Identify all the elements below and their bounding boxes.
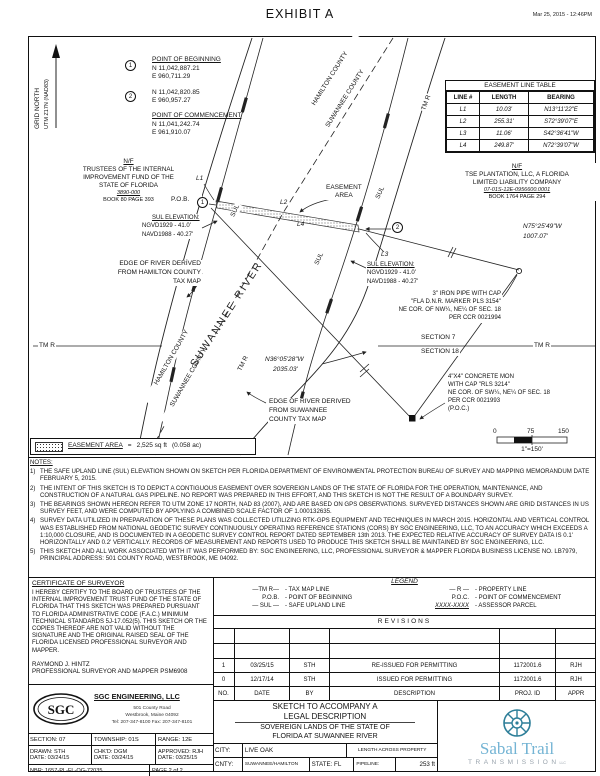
note-item: 2) THE INTENT OF THIS SKETCH IS TO DEPIC… <box>30 485 592 499</box>
point2-easting: E 960,957.27 <box>152 97 191 105</box>
area-legend-value: 2,525 sq ft <box>137 442 167 450</box>
legend-desc: - PROPERTY LINE <box>475 587 526 593</box>
legend-desc: - SAFE UPLAND LINE <box>285 603 345 609</box>
nbr-label: NBR: <box>30 768 43 774</box>
state-cell: STATE: FL <box>310 758 355 771</box>
legend-desc: - ASSESSOR PARCEL <box>475 603 537 609</box>
mon-line: NE COR. OF SW¼, NE¼ OF SEC. 18 <box>448 390 550 398</box>
revision-row-empty <box>213 629 596 644</box>
rev-description: ISSUED FOR PERMITTING <box>330 673 500 686</box>
line-length: 249.87' <box>480 140 529 152</box>
table-row: L3 11.06' S42°36'41"W <box>447 128 594 140</box>
page-cell: PAGE 2 of 2 <box>150 765 213 776</box>
nbr-cell: NBR: 1657-PL-FL-OG-72035 <box>28 765 150 776</box>
note-text: THE INTENT OF THIS SKETCH IS TO DEPICT A… <box>40 485 592 499</box>
section-cell: SECTION: 07 <box>28 734 92 745</box>
nbr-row: NBR: 1657-PL-FL-OG-72035 PAGE 2 of 2 <box>28 765 213 776</box>
grid-north-label: GRID NORTH <box>34 87 42 130</box>
pipeline-value: 253 ft <box>396 758 437 771</box>
table-row: L4 249.87' N72°39'07"W <box>447 140 594 152</box>
legend-desc: - POINT OF COMMENCEMENT <box>475 595 561 601</box>
owner-name: STATE OF FLORIDA <box>56 182 201 190</box>
sul-elevation-title: SUL ELEVATION: <box>367 261 418 269</box>
hdr-date: DATE <box>235 687 290 700</box>
iron-pipe-marker <box>516 268 521 273</box>
concrete-mon-note: 4"X4" CONCRETE MON WITH CAP "RLS 3214" N… <box>447 374 551 414</box>
point2-callout-circle: 2 <box>125 91 136 102</box>
leader-edge-suwannee <box>247 392 266 403</box>
note-num: 2) <box>30 485 40 499</box>
section18-label: SECTION 18 <box>420 348 460 356</box>
map-bottom-border <box>28 457 596 458</box>
hdr-by: BY <box>290 687 330 700</box>
l4-label: L4 <box>297 221 304 229</box>
leader-iron-pipe <box>503 275 517 297</box>
area-legend-box: EASEMENT AREA = 2,525 sq ft (0.058 ac) <box>30 438 256 455</box>
sgc-logo-icon: SGC <box>32 692 90 726</box>
note-item: 1) THE SAFE UPLAND LINE (SUL) ELEVATION … <box>30 468 592 482</box>
legend-title: LEGEND <box>213 578 596 585</box>
page-number: PAGE 2 of 2 <box>152 768 183 774</box>
township-cell: TOWNSHIP: 01S <box>92 734 156 745</box>
pipeline-label: PIPELINE: <box>354 758 396 771</box>
point2-map-circle: 2 <box>392 222 403 233</box>
mon-line: PER CCR 0021993 <box>448 398 550 406</box>
line-bearing: S42°36'41"W <box>529 128 594 140</box>
firm-header: SGC SGC ENGINEERING, LLC 501 County Road… <box>28 684 213 734</box>
ngvd-value: NGVD1929 - 41.0' <box>142 222 200 230</box>
section7-label: SECTION 7 <box>420 334 456 342</box>
date-label: DATE: <box>158 755 174 761</box>
sul-elevation-title: SUL ELEVATION: <box>142 214 200 222</box>
brand-sub: TRANSMISSIONLLC <box>468 759 566 766</box>
hdr-appr: APPR <box>556 687 596 700</box>
sabal-trail-logo-icon <box>500 706 534 740</box>
sul-symbol: — SUL — <box>213 603 279 609</box>
easement-line-table: EASEMENT LINE TABLE LINE # LENGTH BEARIN… <box>445 80 595 153</box>
owner-block-east: N/F TSE PLANTATION, LLC, A FLORIDA LIMIT… <box>438 163 596 201</box>
note-num: 5) <box>30 548 40 562</box>
assessor-parcel-symbol: XXXX-XXXX <box>391 603 469 609</box>
firm-block: SGC SGC ENGINEERING, LLC 501 County Road… <box>28 684 213 772</box>
firm-addr2: Westbrook, Maine 04092 <box>94 713 210 718</box>
svg-text:SGC: SGC <box>48 702 75 717</box>
drawn-date: 03/24/15 <box>48 755 70 761</box>
edge-river-hamilton-note: EDGE OF RIVER DERIVED FROM HAMILTON COUN… <box>58 260 202 286</box>
l1-label: L1 <box>196 175 203 183</box>
rev-description: RE-ISSUED FOR PERMITTING <box>330 659 500 672</box>
utm-zone-label: UTM Z17N (NAD83) <box>44 78 50 130</box>
note-text: THIS SKETCH AND ALL WORK ASSOCIATED WITH… <box>40 548 592 562</box>
city-row: CITY: LIVE OAK LENGTH ACROSS PROPERTY <box>213 743 437 757</box>
certificate-title: CERTIFICATE OF SURVEYOR <box>32 580 209 587</box>
firm-addr3: Tel: 207-347-8100 Fax: 207-347-8101 <box>94 720 210 725</box>
tax-map-line-label: TM R <box>38 342 56 350</box>
rev-by: STH <box>290 673 330 686</box>
township-label: TOWNSHIP: <box>94 737 127 743</box>
edge-line: TAX MAP <box>59 278 201 287</box>
approved-cell: APPROVED: RJH DATE: 03/25/15 <box>156 746 213 764</box>
rev-by: STH <box>290 659 330 672</box>
checked-date: 03/24/15 <box>112 755 134 761</box>
note-num: 4) <box>30 517 40 546</box>
poc-northing: N 11,041,242.74 <box>152 121 200 129</box>
note-num: 3) <box>30 501 40 515</box>
range-value: 12E <box>182 737 192 743</box>
rev-proj-id: 1172001.6 <box>500 673 556 686</box>
state-value: FL <box>334 761 341 768</box>
cnty-value: SUWANNEE/HAMILTON <box>243 758 310 771</box>
sul-elevation-east: SUL ELEVATION: NGVD1929 - 41.0' NAVD1988… <box>366 261 419 286</box>
certificate-block: CERTIFICATE OF SURVEYOR I HEREBY CERTIFY… <box>28 577 213 684</box>
revisions-table: REVISIONS 1 03/25/15 STH RE-ISSUED FOR P… <box>213 615 596 701</box>
surveyor-name: RAYMOND J. HINTZ <box>32 661 209 668</box>
leader-n36-label <box>322 352 366 364</box>
deed-book: BOOK 1764 PAGE 294 <box>439 194 595 201</box>
drawn-cell: DRAWN: STH DATE: 03/24/15 <box>28 746 92 764</box>
edge-river-suwannee-note: EDGE OF RIVER DERIVED FROM SUWANNEE COUN… <box>268 398 352 424</box>
owner-name: LIMITED LIABILITY COMPANY <box>439 179 595 187</box>
poc-title: POINT OF COMMENCEMENT <box>152 112 241 120</box>
date-label: DATE: <box>30 755 46 761</box>
scale-ratio: 1"=150' <box>507 446 557 454</box>
owner-name: IMPROVEMENT FUND OF THE <box>56 174 201 182</box>
brand-name: Sabal Trail <box>480 740 554 759</box>
range-label: RANGE: <box>158 737 180 743</box>
legend-item: P.O.B. - POINT OF BEGINNING <box>213 595 391 601</box>
scale-150: 150 <box>558 428 569 436</box>
brand-block: Sabal Trail TRANSMISSIONLLC <box>438 700 596 772</box>
scale-bar-fill <box>514 437 532 443</box>
sketch-title-block: SKETCH TO ACCOMPANY A LEGAL DESCRIPTION … <box>213 700 438 772</box>
area-legend-eq: = <box>128 442 132 450</box>
firm-name: SGC ENGINEERING, LLC <box>94 692 180 701</box>
leader-concrete-mon <box>420 403 445 419</box>
assessor-parcel: 07-01S-12E-0956600.0001 <box>439 187 595 194</box>
notes-section: NOTES: 1) THE SAFE UPLAND LINE (SUL) ELE… <box>30 459 592 562</box>
line-bearing: S72°39'07"E <box>529 116 594 128</box>
col-length: LENGTH <box>480 92 529 104</box>
date-label: DATE: <box>94 755 110 761</box>
revisions-title: REVISIONS <box>213 616 596 629</box>
county-row: CNTY: SUWANNEE/HAMILTON STATE: FL PIPELI… <box>213 757 437 771</box>
concrete-monument-marker <box>409 415 416 422</box>
edge-line: FROM HAMILTON COUNTY <box>59 269 201 278</box>
leader-sul-elev-east <box>351 261 366 268</box>
approved-date: 03/25/15 <box>176 755 198 761</box>
drawn-row: DRAWN: STH DATE: 03/24/15 CHK'D: DGM DAT… <box>28 746 213 765</box>
page-title: EXHIBIT A <box>200 7 400 21</box>
revisions-header-row: NO. DATE BY DESCRIPTION PROJ. ID APPR <box>213 687 596 701</box>
city-label: CITY: <box>213 744 243 757</box>
note-item: 3) THE BEARINGS SHOWN HEREON REFER TO UT… <box>30 501 592 515</box>
point1-callout-circle: 1 <box>125 60 136 71</box>
sul-elevation-west: SUL ELEVATION: NGVD1929 - 41.0' NAVD1988… <box>141 214 201 239</box>
iron-pipe-line: PER CCR 0021994 <box>389 315 501 323</box>
rev-no: 1 <box>213 659 235 672</box>
revision-row: 0 12/17/14 STH ISSUED FOR PERMITTING 117… <box>213 673 596 687</box>
sketch-title-line2: LEGAL DESCRIPTION <box>213 712 437 722</box>
table-row: L1 10.03' N13°11'22"E <box>447 104 594 116</box>
rev-no: 0 <box>213 673 235 686</box>
easement-table-title: EASEMENT LINE TABLE <box>446 81 594 91</box>
scale-0: 0 <box>493 428 497 436</box>
point2-northing: N 11,042,820.85 <box>152 89 200 97</box>
easement-area-label: EASEMENT AREA <box>325 184 363 200</box>
legend-desc: - POINT OF BEGINNING <box>285 595 352 601</box>
checked-cell: CHK'D: DGM DATE: 03/24/15 <box>92 746 156 764</box>
note-text: SURVEY DATA UTILIZED IN PREPARATION OF T… <box>40 517 592 546</box>
iron-pipe-line: NE COR. OF NW¼, NE¼ OF SEC. 18 <box>389 307 501 315</box>
ngvd-value: NGVD1929 - 41.0' <box>367 269 418 277</box>
iron-pipe-line: 3" IRON PIPE WITH CAP <box>389 291 501 299</box>
range-cell: RANGE: 12E <box>156 734 213 745</box>
legend-item: — R — - PROPERTY LINE <box>391 587 561 593</box>
easement-table-grid: LINE # LENGTH BEARING L1 10.03' N13°11'2… <box>446 91 594 152</box>
line-id: L1 <box>447 104 480 116</box>
pob-northing: N 11,042,887.21 <box>152 65 200 73</box>
scale-75: 75 <box>527 428 534 436</box>
notes-title: NOTES: <box>30 459 592 466</box>
note-item: 4) SURVEY DATA UTILIZED IN PREPARATION O… <box>30 517 592 546</box>
nf-label: N/F <box>439 163 595 171</box>
line-length: 255.31' <box>480 116 529 128</box>
legend-desc: - TAX MAP LINE <box>285 587 329 593</box>
line-id: L3 <box>447 128 480 140</box>
point1-map-circle: 1 <box>197 197 208 208</box>
pob-title: POINT OF BEGINNING <box>152 56 221 64</box>
area-legend-acres: (0.058 ac) <box>172 442 201 450</box>
l2-label: L2 <box>280 199 287 207</box>
legend-col-right: — R — - PROPERTY LINE P.O.C. - POINT OF … <box>391 587 561 609</box>
line-id: L2 <box>447 116 480 128</box>
hdr-description: DESCRIPTION <box>330 687 500 700</box>
mon-line: 4"X4" CONCRETE MON <box>448 374 550 382</box>
n75-distance: 1007.07' <box>522 233 549 241</box>
poc-easting: E 961,910.07 <box>152 129 191 137</box>
revision-row: 1 03/25/15 STH RE-ISSUED FOR PERMITTING … <box>213 659 596 673</box>
iron-pipe-line: "FLA D.N.R. MARKER PLS 3154" <box>389 299 501 307</box>
drawing-number: 1657-PL-FL-OG-72035 <box>45 768 103 774</box>
edge-line: EDGE OF RIVER DERIVED <box>59 260 201 269</box>
pob-map-label: P.O.B. <box>170 196 190 204</box>
area-legend-label: EASEMENT AREA <box>68 442 123 450</box>
legend-item: — SUL — - SAFE UPLAND LINE <box>213 603 391 609</box>
owner-name: TRUSTEES OF THE INTERNAL <box>56 166 201 174</box>
city-value: LIVE OAK <box>243 744 348 757</box>
section-value: 07 <box>59 737 65 743</box>
brand-llc: LLC <box>560 761 566 765</box>
line-bearing: N13°11'22"E <box>529 104 594 116</box>
mon-line: (P.O.C.) <box>448 406 550 414</box>
table-row: L2 255.31' S72°39'07"E <box>447 116 594 128</box>
sketch-title-line3: SOVEREIGN LANDS OF THE STATE OF <box>213 724 437 732</box>
line-bearing: N72°39'07"W <box>529 140 594 152</box>
leader-sul-elev-west <box>202 221 217 228</box>
sketch-title-line1: SKETCH TO ACCOMPANY A <box>213 700 437 712</box>
line-id: L4 <box>447 140 480 152</box>
rev-date: 12/17/14 <box>235 673 290 686</box>
note-text: THE SAFE UPLAND LINE (SUL) ELEVATION SHO… <box>40 468 592 482</box>
l3-label: L3 <box>381 251 388 259</box>
property-line-symbol: — R — <box>391 587 469 593</box>
legend-item: XXXX-XXXX - ASSESSOR PARCEL <box>391 603 561 609</box>
pob-easting: E 960,711.29 <box>152 73 190 81</box>
title-rule <box>235 722 415 723</box>
legend-columns: —TM R— - TAX MAP LINE P.O.B. - POINT OF … <box>213 587 596 609</box>
firm-addr1: 501 County Road <box>94 706 210 711</box>
tax-map-line-symbol: —TM R— <box>213 587 279 593</box>
rev-date: 03/25/15 <box>235 659 290 672</box>
tax-map-line-label: TM R <box>533 342 551 350</box>
leader-point1 <box>209 204 216 205</box>
edge-line: FROM SUWANNEE <box>269 407 351 416</box>
cnty-label: CNTY: <box>213 758 243 771</box>
nf-label: N/F <box>56 158 201 166</box>
easement-hatch-swatch <box>35 442 63 452</box>
strr-row: SECTION: 07 TOWNSHIP: 01S RANGE: 12E <box>28 734 213 746</box>
surveyor-role: PROFESSIONAL SURVEYOR AND MAPPER PSM6908 <box>32 668 209 675</box>
section-label: SECTION: <box>30 737 57 743</box>
revision-row-empty <box>213 644 596 659</box>
n75-bearing: N75°25'49"W <box>522 223 563 231</box>
pob-symbol: P.O.B. <box>213 595 279 601</box>
state-label: STATE: <box>312 761 333 768</box>
hdr-proj-id: PROJ. ID <box>500 687 556 700</box>
col-line: LINE # <box>447 92 480 104</box>
n36-bearing: N36°05'28"W <box>264 356 305 364</box>
note-text: THE BEARINGS SHOWN HEREON REFER TO UTM Z… <box>40 501 592 515</box>
legend-item: P.O.C. - POINT OF COMMENCEMENT <box>391 595 561 601</box>
rev-appr: RJH <box>556 673 596 686</box>
brand-sub-text: TRANSMISSION <box>468 759 559 766</box>
hdr-no: NO. <box>213 687 235 700</box>
edge-line: COUNTY TAX MAP <box>269 416 351 425</box>
mon-line: WITH CAP "RLS 3214" <box>448 382 550 390</box>
length-across-property-label: LENGTH ACROSS PROPERTY <box>347 744 437 757</box>
navd-value: NAVD1988 - 40.27' <box>367 278 418 286</box>
north-arrow-head <box>52 44 60 58</box>
sketch-title-line4: FLORIDA AT SUWANNEE RIVER <box>213 733 437 741</box>
survey-sheet: EXHIBIT A Mar 25, 2015 - 12:46PM <box>0 0 600 776</box>
navd-value: NAVD1988 - 40.27' <box>142 231 200 239</box>
iron-pipe-note: 3" IRON PIPE WITH CAP "FLA D.N.R. MARKER… <box>388 291 502 323</box>
note-item: 5) THIS SKETCH AND ALL WORK ASSOCIATED W… <box>30 548 592 562</box>
col-bearing: BEARING <box>529 92 594 104</box>
legend-item: —TM R— - TAX MAP LINE <box>213 587 391 593</box>
rev-appr: RJH <box>556 659 596 672</box>
line-length: 11.06' <box>480 128 529 140</box>
legend-col-left: —TM R— - TAX MAP LINE P.O.B. - POINT OF … <box>213 587 391 609</box>
plot-timestamp: Mar 25, 2015 - 12:46PM <box>440 12 592 18</box>
owner-name: TSE PLANTATION, LLC, A FLORIDA <box>439 171 595 179</box>
tie-line-n36 <box>211 208 412 419</box>
note-num: 1) <box>30 468 40 482</box>
leader-easement-area <box>300 199 332 212</box>
edge-line: EDGE OF RIVER DERIVED <box>269 398 351 407</box>
poc-symbol: P.O.C. <box>391 595 469 601</box>
n36-distance: 2035.03' <box>272 366 299 374</box>
certificate-body: I HEREBY CERTIFY TO THE BOARD OF TRUSTEE… <box>32 590 209 655</box>
township-value: 01S <box>128 737 138 743</box>
rev-proj-id: 1172001.6 <box>500 659 556 672</box>
legend-block: LEGEND —TM R— - TAX MAP LINE P.O.B. - PO… <box>213 577 596 615</box>
line-length: 10.03' <box>480 104 529 116</box>
